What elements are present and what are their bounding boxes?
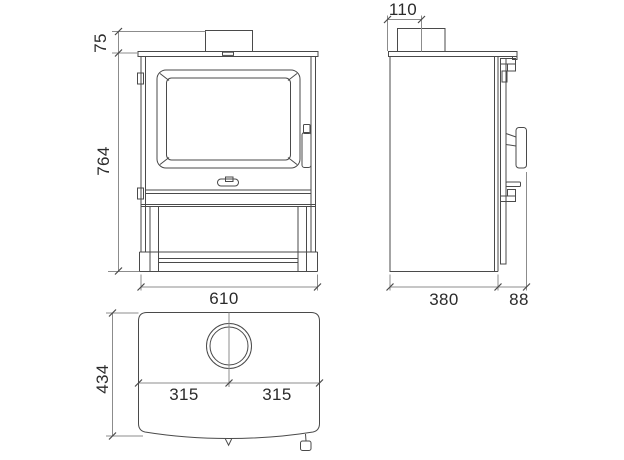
front-frame-mitre-br bbox=[288, 158, 297, 165]
side-body bbox=[390, 57, 495, 272]
dim-label-front-flue-height: 75 bbox=[92, 27, 110, 59]
dim-label-side-depth: 380 bbox=[419, 291, 469, 309]
top-handle-knob bbox=[301, 441, 312, 451]
side-door-panel bbox=[501, 59, 507, 265]
top-latch bbox=[225, 439, 231, 445]
side-handle-arm-bottom bbox=[506, 145, 516, 147]
front-frame-mitre-tr bbox=[288, 74, 297, 81]
side-latch-pin bbox=[506, 182, 521, 187]
dim-label-top-flue-left: 315 bbox=[161, 386, 207, 404]
top-handle-stem bbox=[306, 434, 307, 441]
front-flue-collar bbox=[206, 31, 253, 52]
side-view bbox=[389, 29, 527, 272]
front-window-frame bbox=[157, 70, 300, 168]
front-frame-mitre-tl bbox=[160, 74, 169, 81]
front-top-vent bbox=[223, 52, 234, 55]
front-air-control bbox=[218, 179, 239, 186]
side-door-top-step bbox=[508, 64, 516, 71]
stove-dimension-drawing: 75 764 610 110 380 88 434 315 315 bbox=[0, 0, 624, 460]
dim-label-top-depth: 434 bbox=[94, 356, 112, 402]
dim-label-side-door-depth: 88 bbox=[501, 291, 537, 309]
side-door-handle bbox=[516, 128, 527, 169]
front-window-glass bbox=[167, 78, 291, 160]
front-frame-mitre-bl bbox=[160, 158, 169, 165]
side-door-lower-bracket bbox=[501, 196, 516, 202]
side-door-lower-step bbox=[508, 190, 516, 197]
dim-label-front-width: 610 bbox=[199, 290, 249, 308]
dim-label-front-body-height: 764 bbox=[95, 138, 113, 184]
side-handle-arm-top bbox=[506, 134, 516, 138]
side-top-plate bbox=[389, 52, 518, 57]
front-body bbox=[141, 57, 316, 253]
dim-label-top-flue-right: 315 bbox=[254, 386, 300, 404]
front-view bbox=[138, 31, 319, 272]
front-door-handle bbox=[302, 133, 311, 168]
dim-label-side-flue-offset: 110 bbox=[378, 1, 428, 19]
